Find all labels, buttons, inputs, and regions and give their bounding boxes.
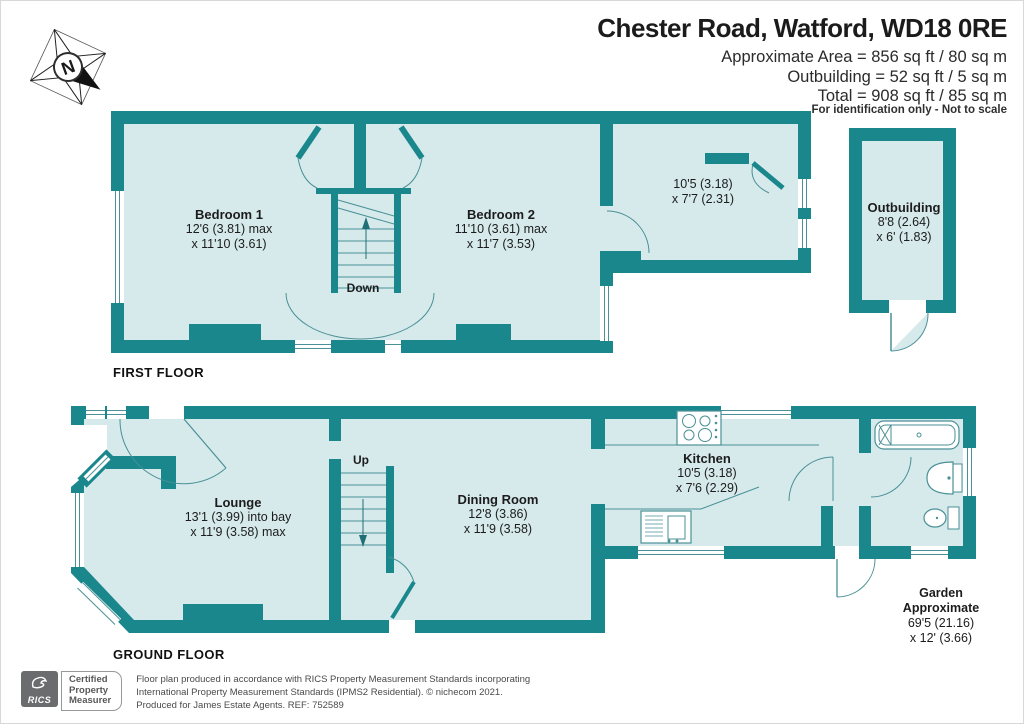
basin-icon	[927, 462, 962, 494]
sink-icon	[641, 511, 691, 543]
room-label-bedroom2: Bedroom 2 11'10 (3.61) max x 11'7 (3.53)	[455, 207, 547, 252]
hob-icon	[677, 411, 721, 445]
area-line: Approximate Area = 856 sq ft / 80 sq m	[721, 48, 1007, 68]
room-label-dining: Dining Room 12'8 (3.86) x 11'9 (3.58)	[458, 492, 539, 537]
outbuilding-door-arc	[891, 313, 928, 351]
stairs-down-label: Down	[347, 281, 380, 295]
disclaimer-text: Floor plan produced in accordance with R…	[136, 671, 530, 712]
toilet-icon	[924, 507, 959, 529]
scale-note: For identification only - Not to scale	[811, 104, 1007, 116]
gf-back-door-opening	[835, 546, 859, 559]
footer: RICS Certified Property Measurer Floor p…	[21, 671, 530, 712]
room-label-outbuilding: Outbuilding 8'8 (2.64) x 6' (1.83)	[868, 200, 941, 245]
page-title: Chester Road, Watford, WD18 0RE	[597, 13, 1007, 44]
bath-icon	[875, 421, 959, 449]
ground-floor-label: GROUND FLOOR	[113, 647, 225, 662]
room-label-kitchen: Kitchen 10'5 (3.18) x 7'6 (2.29)	[676, 451, 738, 496]
compass-icon: N	[17, 16, 120, 119]
rics-logo-text: RICS	[21, 695, 58, 705]
area-line: Outbuilding = 52 sq ft / 5 sq m	[721, 68, 1007, 88]
stairs-up-label: Up	[353, 453, 369, 467]
first-floor-label: FIRST FLOOR	[113, 365, 204, 380]
room-label-bedroom1: Bedroom 1 12'6 (3.81) max x 11'10 (3.61)	[186, 207, 272, 252]
room-label-lounge: Lounge 13'1 (3.99) into bay x 11'9 (3.58…	[185, 495, 292, 540]
area-summary: Approximate Area = 856 sq ft / 80 sq m O…	[721, 48, 1007, 107]
room-label-ff-room: 10'5 (3.18) x 7'7 (2.31)	[672, 177, 734, 207]
rics-lion-icon	[29, 674, 50, 692]
rics-logo: RICS	[21, 671, 58, 707]
floorplan-page: N	[0, 0, 1024, 724]
certified-measurer-badge: Certified Property Measurer	[61, 671, 122, 711]
room-label-garden: Garden Approximate 69'5 (21.16) x 12' (3…	[903, 586, 979, 646]
gf-dining-door-opening	[389, 620, 415, 633]
